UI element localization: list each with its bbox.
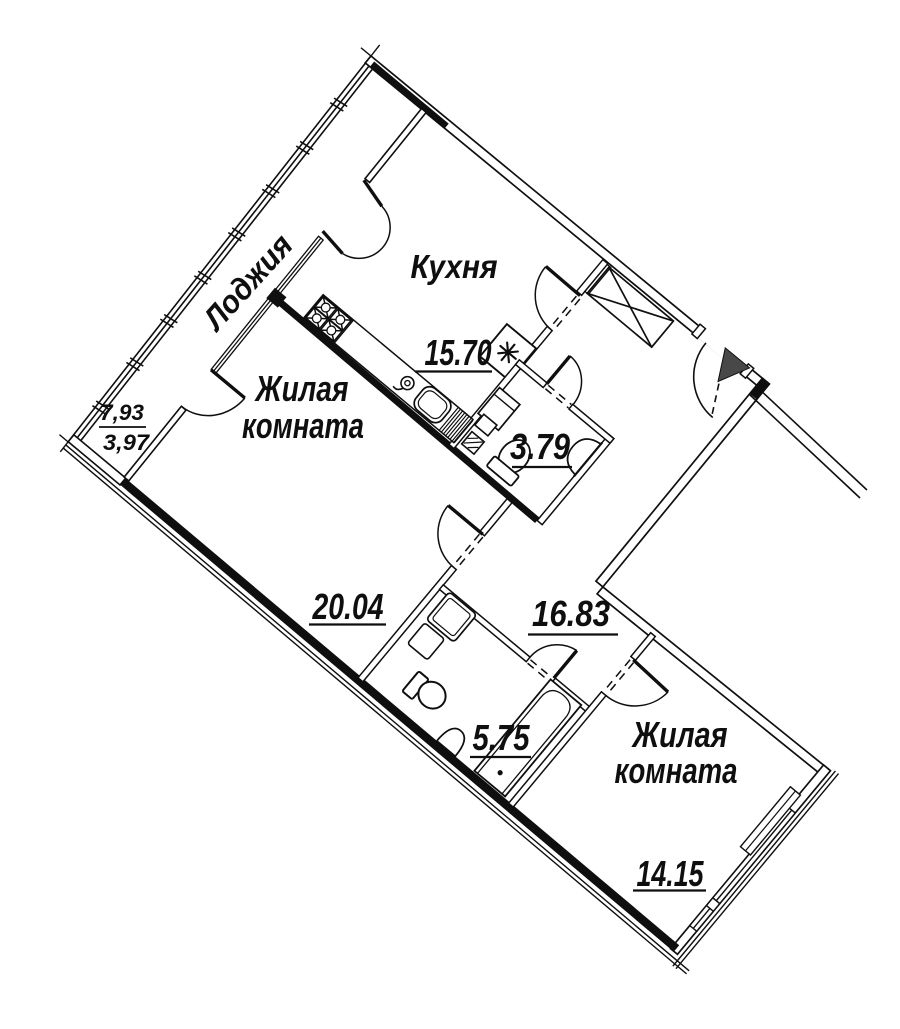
svg-text:7,93: 7,93: [100, 400, 144, 425]
svg-text:15.70: 15.70: [425, 332, 492, 373]
svg-text:20.04: 20.04: [312, 586, 384, 627]
svg-text:14.15: 14.15: [637, 853, 705, 894]
svg-text:5.75: 5.75: [473, 717, 531, 758]
svg-text:Жилая: Жилая: [631, 714, 728, 755]
svg-text:Жилая: Жилая: [254, 368, 349, 409]
svg-text:3.79: 3.79: [510, 426, 570, 467]
svg-text:16.83: 16.83: [532, 593, 610, 634]
svg-text:комната: комната: [242, 405, 364, 446]
svg-text:3,97: 3,97: [103, 430, 151, 455]
svg-text:комната: комната: [615, 750, 738, 791]
svg-text:Кухня: Кухня: [411, 248, 498, 285]
